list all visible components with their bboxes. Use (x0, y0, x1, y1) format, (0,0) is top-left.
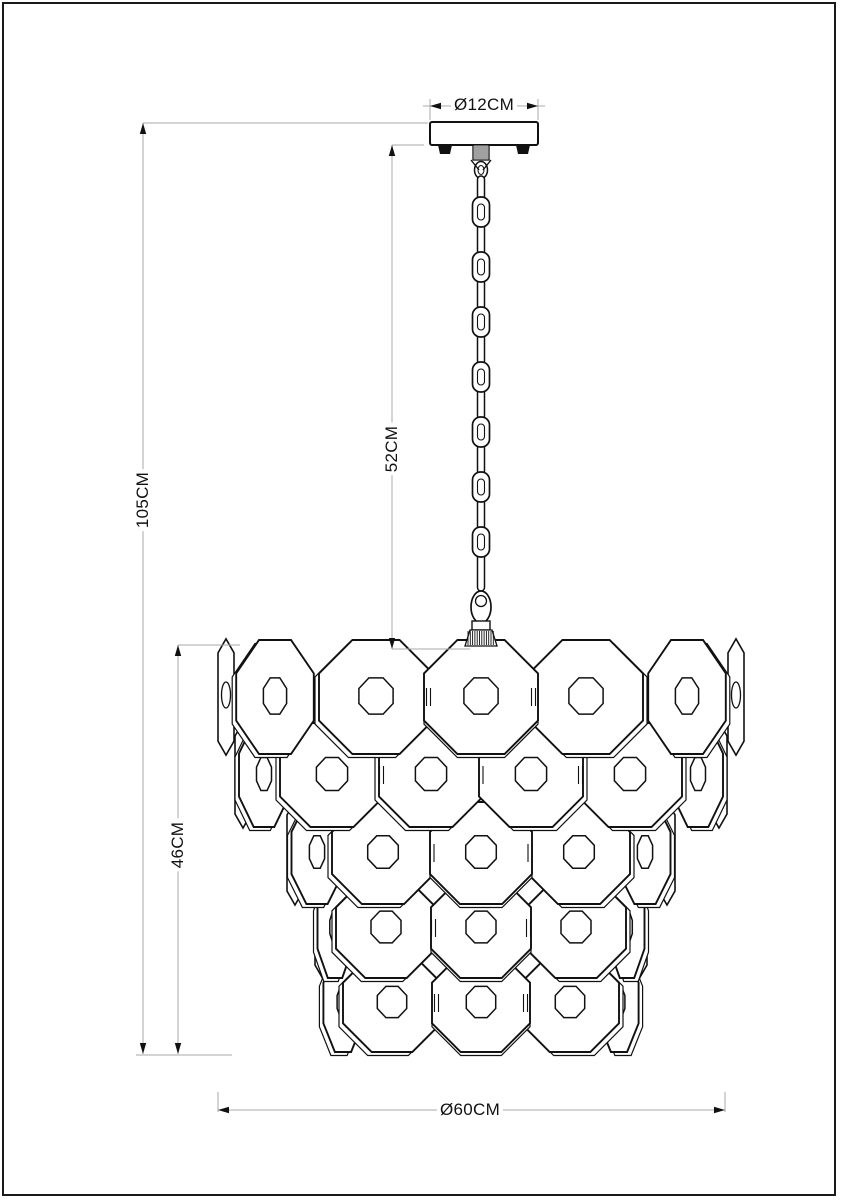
chandelier-body (218, 639, 744, 1056)
chandelier-line-drawing (0, 0, 841, 1200)
chain-drop-label: 52CM (382, 423, 402, 476)
canopy-and-chain (430, 122, 538, 646)
body-height-label: 46CM (168, 819, 188, 872)
total-height-label: 105CM (133, 469, 153, 531)
dimension-drawing: Ø12CM 105CM 52CM 46CM Ø60CM (0, 0, 841, 1200)
canopy-diameter-label: Ø12CM (451, 95, 517, 115)
body-diameter-label: Ø60CM (437, 1100, 503, 1120)
